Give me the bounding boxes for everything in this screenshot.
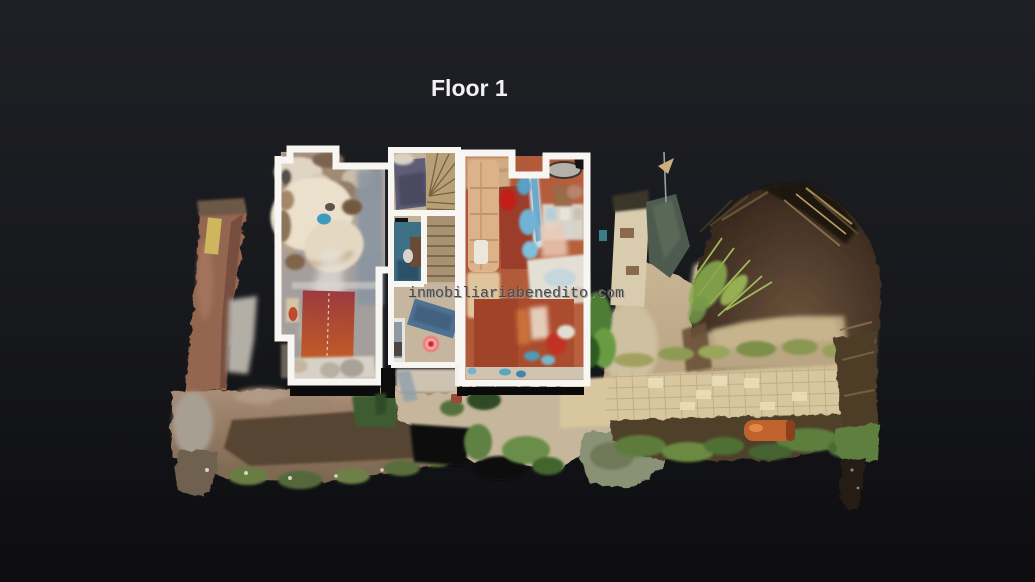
svg-text:Floor 1: Floor 1 bbox=[431, 75, 508, 101]
svg-text:inmobiliariabenedito.com: inmobiliariabenedito.com bbox=[408, 285, 624, 302]
